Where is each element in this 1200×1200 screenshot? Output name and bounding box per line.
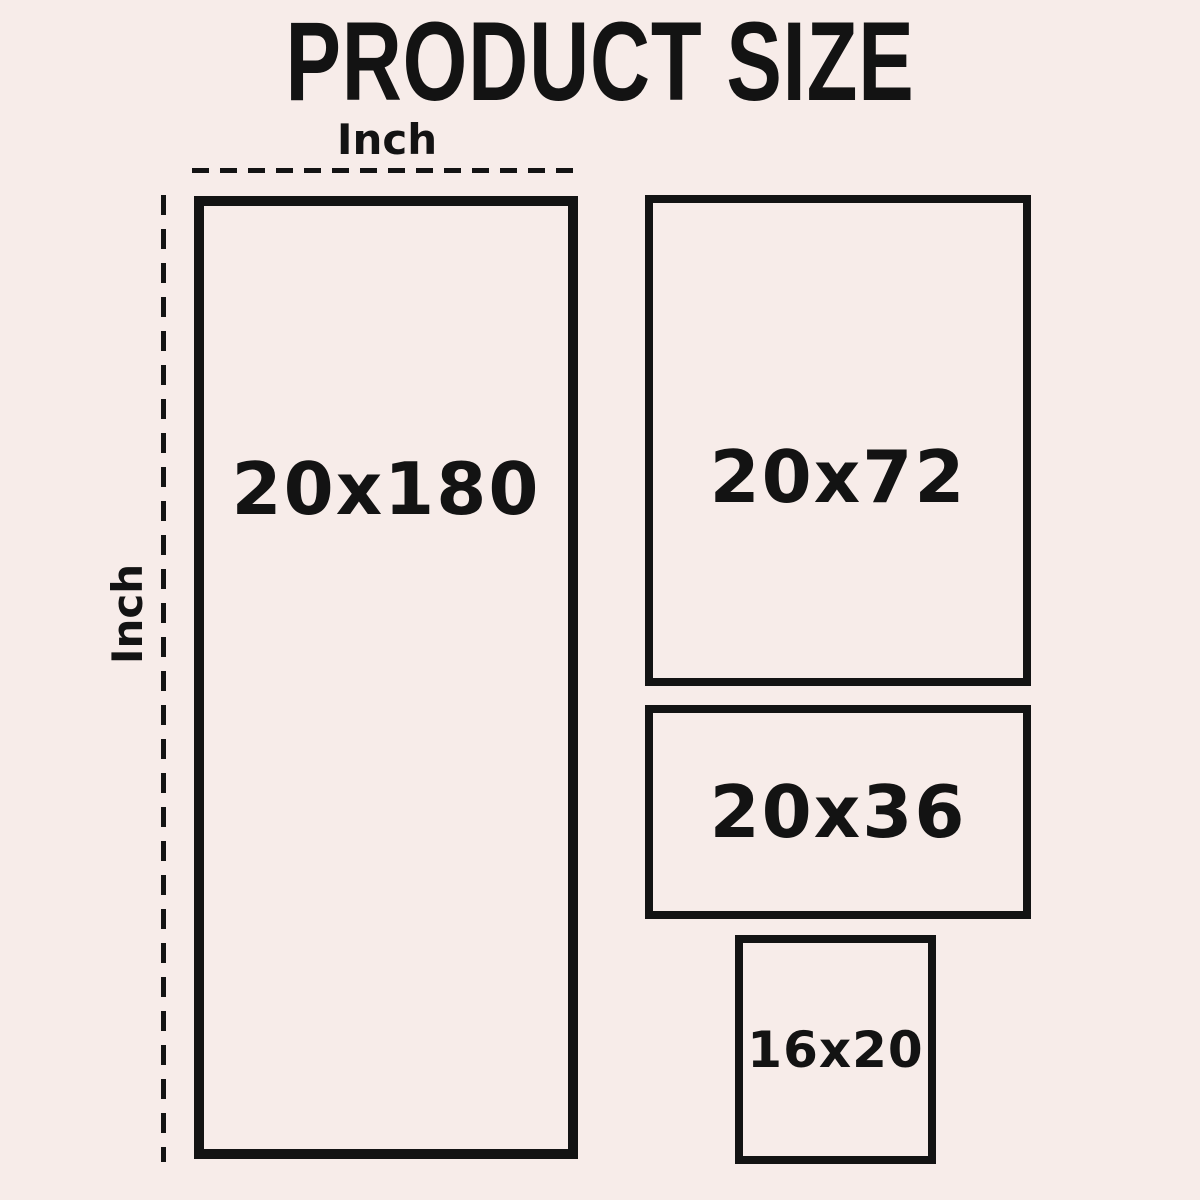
size-box-20x72: 20x72: [645, 195, 1031, 686]
size-box-20x36: 20x36: [645, 705, 1031, 919]
size-label-16x20: 16x20: [747, 1025, 923, 1075]
page-title: PRODUCT SIZE: [120, 6, 1080, 118]
horizontal-axis-label: Inch: [192, 116, 582, 164]
vertical-dashed-measure-line: [161, 195, 166, 1162]
size-label-20x36: 20x36: [710, 776, 967, 848]
vertical-axis-label: Inch: [98, 549, 158, 679]
product-size-diagram: PRODUCT SIZE Inch Inch 20x180 20x72 20x3…: [0, 0, 1200, 1200]
horizontal-dashed-measure-line: [192, 168, 582, 173]
size-label-20x72: 20x72: [653, 441, 1023, 513]
size-box-20x180: 20x180: [194, 196, 578, 1159]
size-box-16x20: 16x20: [735, 935, 936, 1164]
size-label-20x180: 20x180: [204, 453, 568, 525]
